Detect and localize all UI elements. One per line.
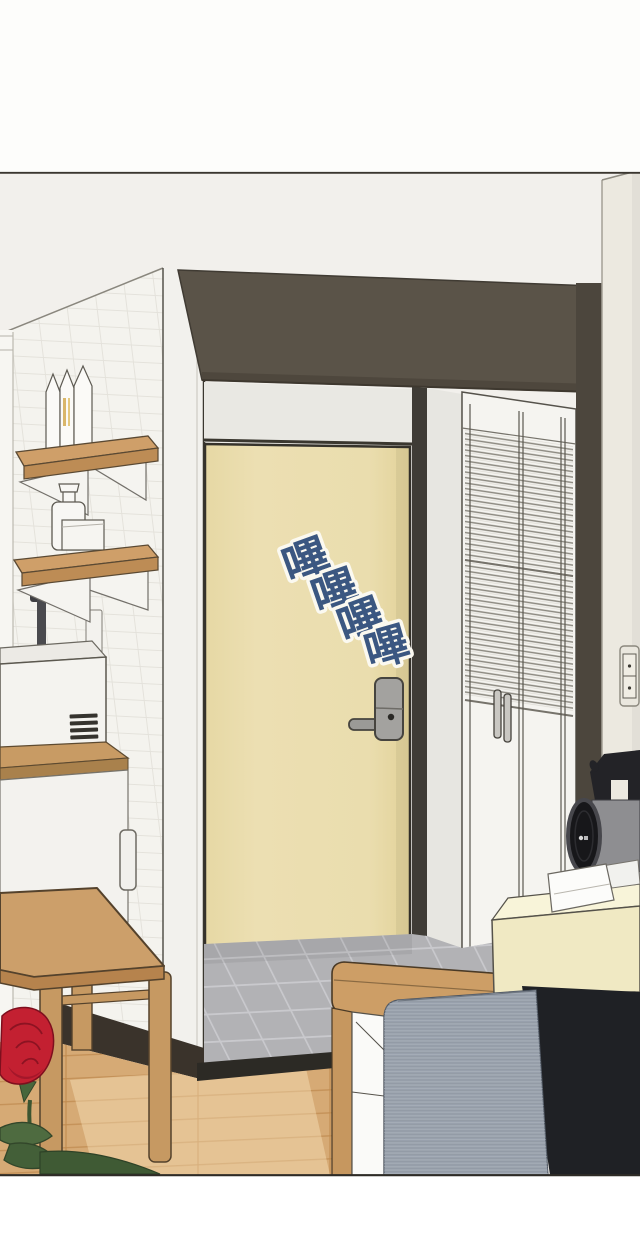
entry-door: 嗶 嗶 嗶 嗶: [204, 440, 415, 952]
comic-panel-page: 嗶 嗶 嗶 嗶: [0, 0, 640, 1244]
milk-cartons: [46, 366, 92, 455]
bed-drawers: [352, 1012, 384, 1175]
alcove-side-wall: [427, 388, 462, 948]
entry-partition-wall: [163, 268, 204, 1092]
wall-switch: [620, 646, 639, 706]
soffit-beam: [178, 270, 594, 392]
white-appliance: [0, 641, 106, 752]
cabinet-handle: [120, 830, 136, 890]
bottom-margin: [0, 1176, 640, 1244]
top-margin: [0, 0, 640, 172]
closet-handle-left: [494, 690, 501, 738]
bed-side-rail: [332, 1008, 352, 1175]
mattress: [378, 985, 553, 1180]
transom-wall: [204, 382, 412, 446]
fan-logo-mark: [579, 836, 583, 840]
keyhole-dot: [388, 714, 394, 720]
table-leg-right: [149, 972, 171, 1162]
closet-handle-right: [504, 694, 511, 742]
louver-closet: [462, 392, 576, 950]
